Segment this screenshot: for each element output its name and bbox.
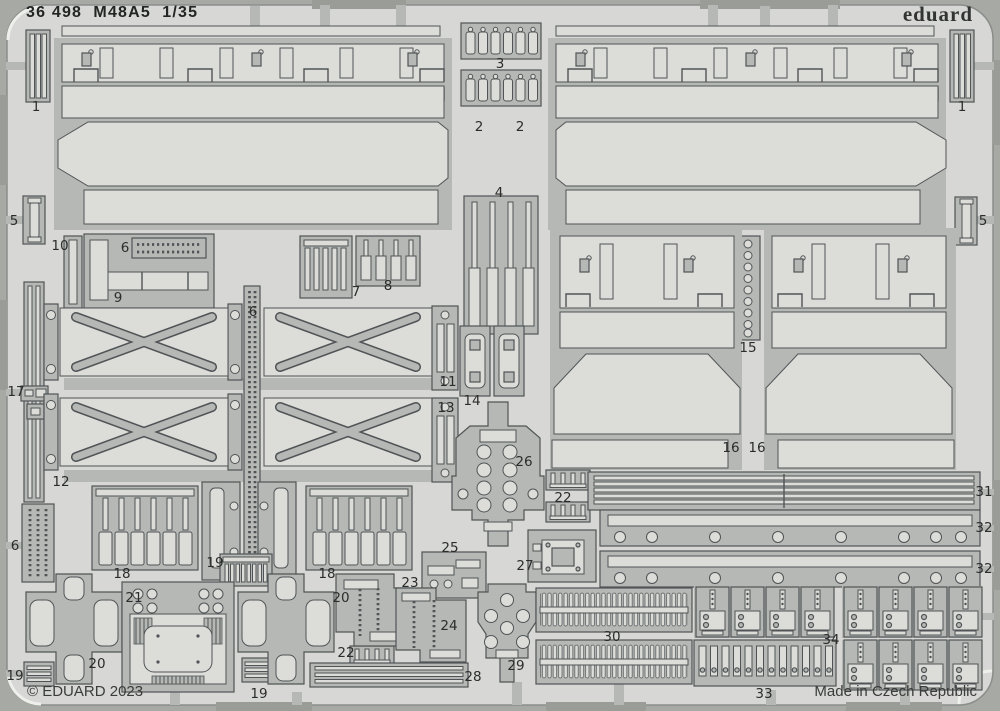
part-number-label: 27	[516, 558, 533, 574]
part-4	[464, 196, 538, 334]
part-33	[694, 640, 836, 686]
part-number-label: 33	[755, 686, 772, 702]
part-number-label: 16	[722, 440, 739, 456]
fret-artwork	[0, 0, 1000, 711]
part-34-group	[842, 586, 982, 638]
part-5-left	[23, 196, 45, 244]
part-16-left	[550, 228, 742, 470]
part-number-label: 28	[464, 669, 481, 685]
part-number-label: 17	[7, 384, 24, 400]
part-number-label: 19	[6, 668, 23, 684]
part-1-left	[26, 30, 50, 102]
sheet-title: 36 498 M48A5 1/35	[26, 4, 198, 22]
part-number-label: 20	[88, 656, 105, 672]
part-28	[310, 663, 468, 687]
eduard-logo: eduard	[903, 2, 973, 27]
part-number-label: 10	[51, 238, 68, 254]
part-number-label: 26	[515, 454, 532, 470]
part-number-label: 1	[32, 99, 41, 115]
part-18-right	[306, 486, 412, 570]
part-16-right	[764, 228, 956, 470]
part-number-label: 24	[440, 618, 457, 634]
part-number-label: 11	[439, 374, 456, 390]
part-5-right	[955, 197, 977, 245]
part-number-label: 8	[384, 278, 393, 294]
fender-top-strip-left	[62, 26, 440, 36]
part-34-group	[694, 586, 834, 638]
part-6-chains-left	[22, 504, 54, 582]
part-number-label: 13	[437, 400, 454, 416]
part-number-label: 30	[603, 629, 620, 645]
part-number-label: 25	[441, 540, 458, 556]
copyright-text: © EDUARD 2023	[27, 683, 143, 700]
part-number-label: 2	[475, 119, 484, 135]
part-6-chains-top	[132, 238, 206, 258]
part-number-label: 16	[748, 440, 765, 456]
part-number-label: 5	[10, 213, 19, 229]
part-number-label: 5	[979, 213, 988, 229]
part-32	[600, 510, 980, 546]
part-7	[300, 236, 352, 298]
fender-top-strip-right	[556, 26, 934, 36]
part-31	[588, 472, 980, 510]
part-number-label: 20	[332, 590, 349, 606]
part-number-label: 7	[352, 284, 361, 300]
part-number-label: 1	[958, 99, 967, 115]
part-32	[600, 551, 980, 587]
part-number-label: 32	[975, 520, 992, 536]
part-number-label: 32	[975, 561, 992, 577]
part-number-label: 9	[114, 290, 123, 306]
part-number-label: 6	[11, 538, 20, 554]
part-19-mid	[220, 554, 272, 586]
part-number-label: 23	[401, 575, 418, 591]
part-18-left	[92, 486, 198, 570]
photo-etch-fret-sheet: 1322154510697861711131415121616262231323…	[0, 0, 1000, 711]
part-27	[528, 530, 596, 582]
part-number-label: 4	[495, 185, 504, 201]
part-2-right-fender	[548, 38, 946, 230]
part-number-label: 14	[463, 393, 480, 409]
part-number-label: 22	[554, 490, 571, 506]
part-number-label: 2	[516, 119, 525, 135]
part-number-label: 31	[975, 484, 992, 500]
part-30	[536, 588, 692, 632]
part-30	[536, 640, 692, 684]
part-number-label: 29	[507, 658, 524, 674]
part-number-label: 3	[496, 56, 505, 72]
part-number-label: 6	[249, 304, 258, 320]
part-number-label: 18	[318, 566, 335, 582]
part-1-right	[950, 30, 974, 102]
part-number-label: 22	[337, 645, 354, 661]
part-number-label: 12	[52, 474, 69, 490]
part-number-label: 15	[739, 340, 756, 356]
part-2-left-fender	[54, 38, 452, 230]
part-number-label: 18	[113, 566, 130, 582]
part-number-label: 34	[822, 632, 839, 648]
part-number-label: 19	[250, 686, 267, 702]
part-number-label: 19	[206, 555, 223, 571]
made-in-text: Made in Czech Republic	[814, 683, 977, 700]
part-number-label: 21	[125, 590, 142, 606]
part-number-label: 6	[121, 240, 130, 256]
part-22	[546, 470, 590, 490]
